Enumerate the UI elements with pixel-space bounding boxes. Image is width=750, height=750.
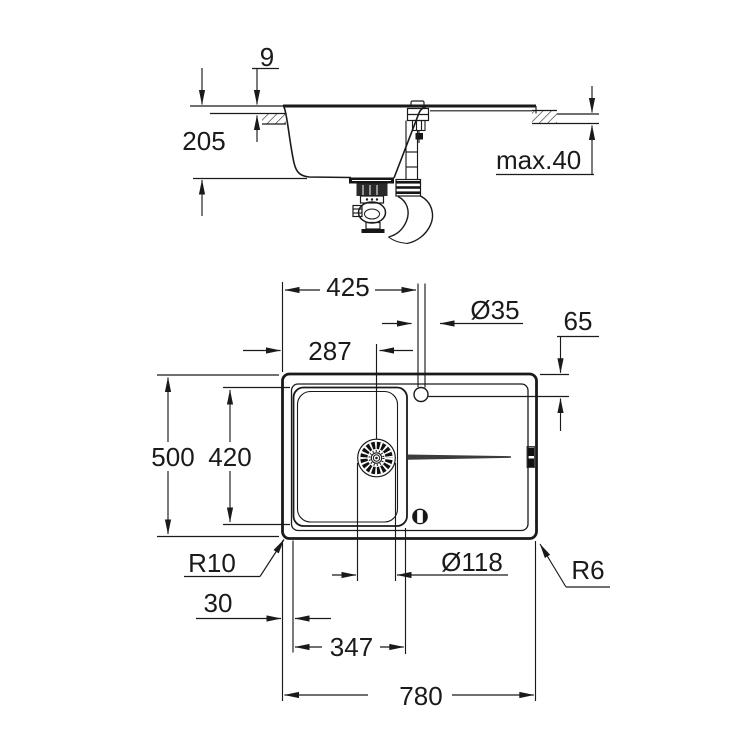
clip-pad-top — [528, 448, 535, 457]
side-view: 9 205 max.40 — [182, 42, 599, 244]
dim-label-overall-depth: 500 — [151, 442, 194, 472]
dim-bowl-inner-depth: 420 — [208, 390, 251, 522]
technical-drawing-sink: 9 205 max.40 — [0, 0, 750, 750]
counter-hatch-left — [262, 114, 286, 124]
countertop-section — [190, 106, 599, 124]
dim-drain-diameter: Ø118 — [332, 547, 508, 577]
drainboard-groove — [408, 455, 511, 460]
dim-faucet-offset-y: 65 — [557, 306, 599, 431]
dim-overall-depth: 500 — [151, 378, 194, 535]
dim-label-counter-thickness: max.40 — [496, 145, 581, 175]
counter-hatch-right — [532, 111, 557, 124]
clip-pad-bottom — [528, 459, 535, 468]
dim-label-faucet-hole-diameter: Ø35 — [470, 295, 519, 325]
dim-faucet-offset-x: 425 — [285, 272, 416, 302]
dim-label-overall-width: 780 — [399, 681, 442, 711]
joint-dot — [366, 198, 368, 200]
joint-dot — [376, 198, 378, 200]
overflow-hose-end — [389, 237, 408, 244]
leader-arrow — [540, 544, 566, 587]
dim-label-bowl-inner-width: 347 — [330, 632, 373, 662]
rod-bead — [416, 133, 424, 140]
dim-label-corner-radius-outer: R6 — [571, 555, 604, 585]
faucet-hole-circle — [414, 388, 428, 402]
dim-label-drain-offset-x: 287 — [308, 336, 351, 366]
drain-tailpiece — [357, 184, 388, 197]
leader-arrow — [260, 540, 284, 577]
dim-corner-radius-outer: R6 — [540, 544, 610, 587]
drain-assembly — [349, 178, 394, 234]
overflow-assembly — [389, 101, 433, 244]
bowl-left-wall — [284, 107, 351, 178]
dim-label-bowl-depth: 205 — [182, 126, 225, 156]
clamp-band — [396, 181, 421, 184]
dim-counter-thickness: max.40 — [496, 86, 594, 175]
overflow-hose-inner — [389, 197, 409, 238]
strainer — [358, 439, 396, 477]
trap-bulb-inner — [365, 209, 380, 219]
dim-label-rim-height: 9 — [260, 42, 274, 72]
groove-line — [408, 455, 511, 460]
dim-rim-to-bowl: 30 — [196, 588, 331, 619]
dim-rim-height: 9 — [252, 42, 279, 142]
dim-label-faucet-offset-x: 425 — [326, 272, 369, 302]
dim-label-corner-radius-inner: R10 — [188, 548, 236, 578]
dim-faucet-hole-diameter: Ø35 — [382, 295, 523, 325]
dim-drain-offset-x: 287 — [243, 336, 413, 366]
top-view: 425 Ø35 65 287 500 420 — [151, 272, 610, 711]
dim-overall-width: 780 — [285, 681, 534, 711]
drawing-svg: 9 205 max.40 — [0, 0, 750, 750]
faucet-hole — [414, 388, 428, 402]
dim-corner-radius-inner: R10 — [184, 540, 284, 579]
overflow-band — [417, 509, 424, 525]
joint-dot — [371, 198, 373, 200]
dim-label-faucet-offset-y: 65 — [564, 306, 593, 336]
dim-bowl-inner-width: 347 — [295, 632, 404, 662]
clamp-band — [396, 191, 421, 194]
dim-label-bowl-inner-depth: 420 — [208, 442, 251, 472]
dim-label-drain-diameter: Ø118 — [441, 547, 503, 577]
trap-outlet-flange — [362, 229, 385, 233]
overflow-hole — [413, 509, 427, 525]
dim-label-rim-to-bowl: 30 — [204, 588, 233, 618]
clamp-band — [396, 186, 421, 189]
strainer-center-dot — [375, 457, 378, 460]
dim-bowl-depth: 205 — [182, 68, 307, 216]
overflow-hose-outer — [407, 196, 433, 244]
